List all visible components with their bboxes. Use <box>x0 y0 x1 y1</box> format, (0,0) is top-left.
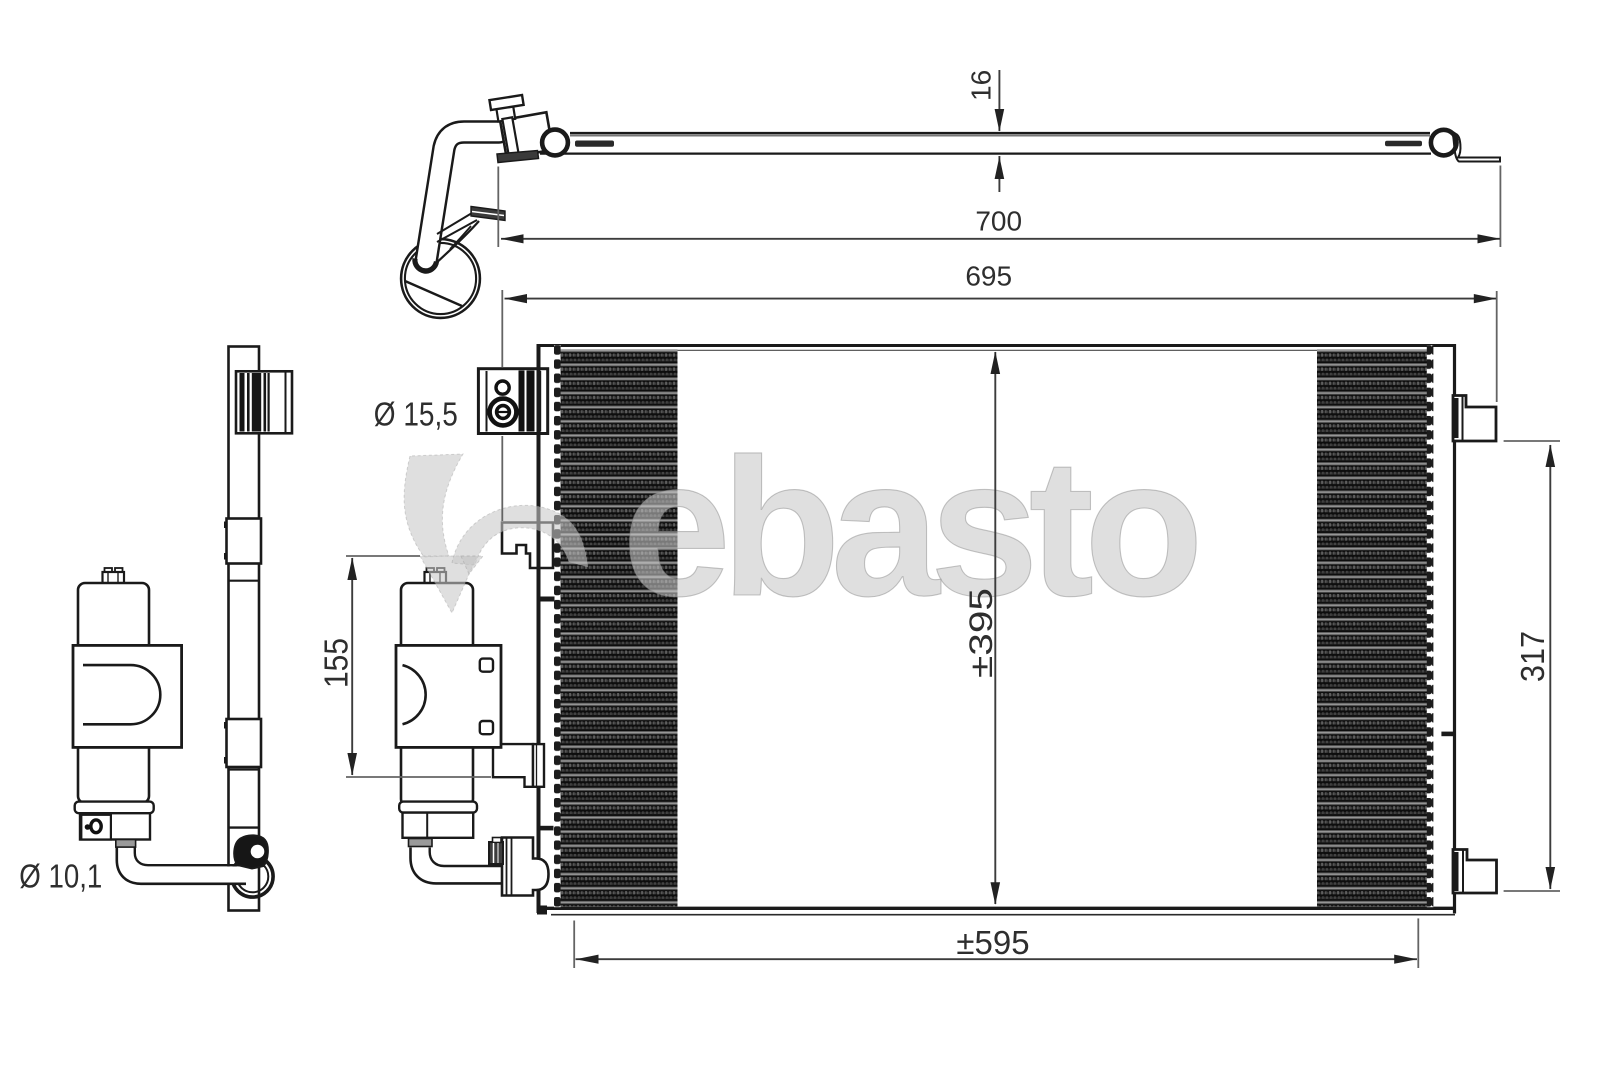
svg-text:Ø 15,5: Ø 15,5 <box>374 396 458 433</box>
svg-text:700: 700 <box>975 205 1022 236</box>
svg-text:155: 155 <box>318 638 355 688</box>
svg-text:317: 317 <box>1514 631 1551 682</box>
svg-text:16: 16 <box>966 70 997 101</box>
svg-text:±595: ±595 <box>956 924 1029 961</box>
svg-text:695: 695 <box>965 261 1012 292</box>
svg-text:Ø 10,1: Ø 10,1 <box>19 858 102 895</box>
svg-text:ebasto: ebasto <box>622 418 1197 637</box>
svg-text:±395: ±395 <box>963 588 999 678</box>
